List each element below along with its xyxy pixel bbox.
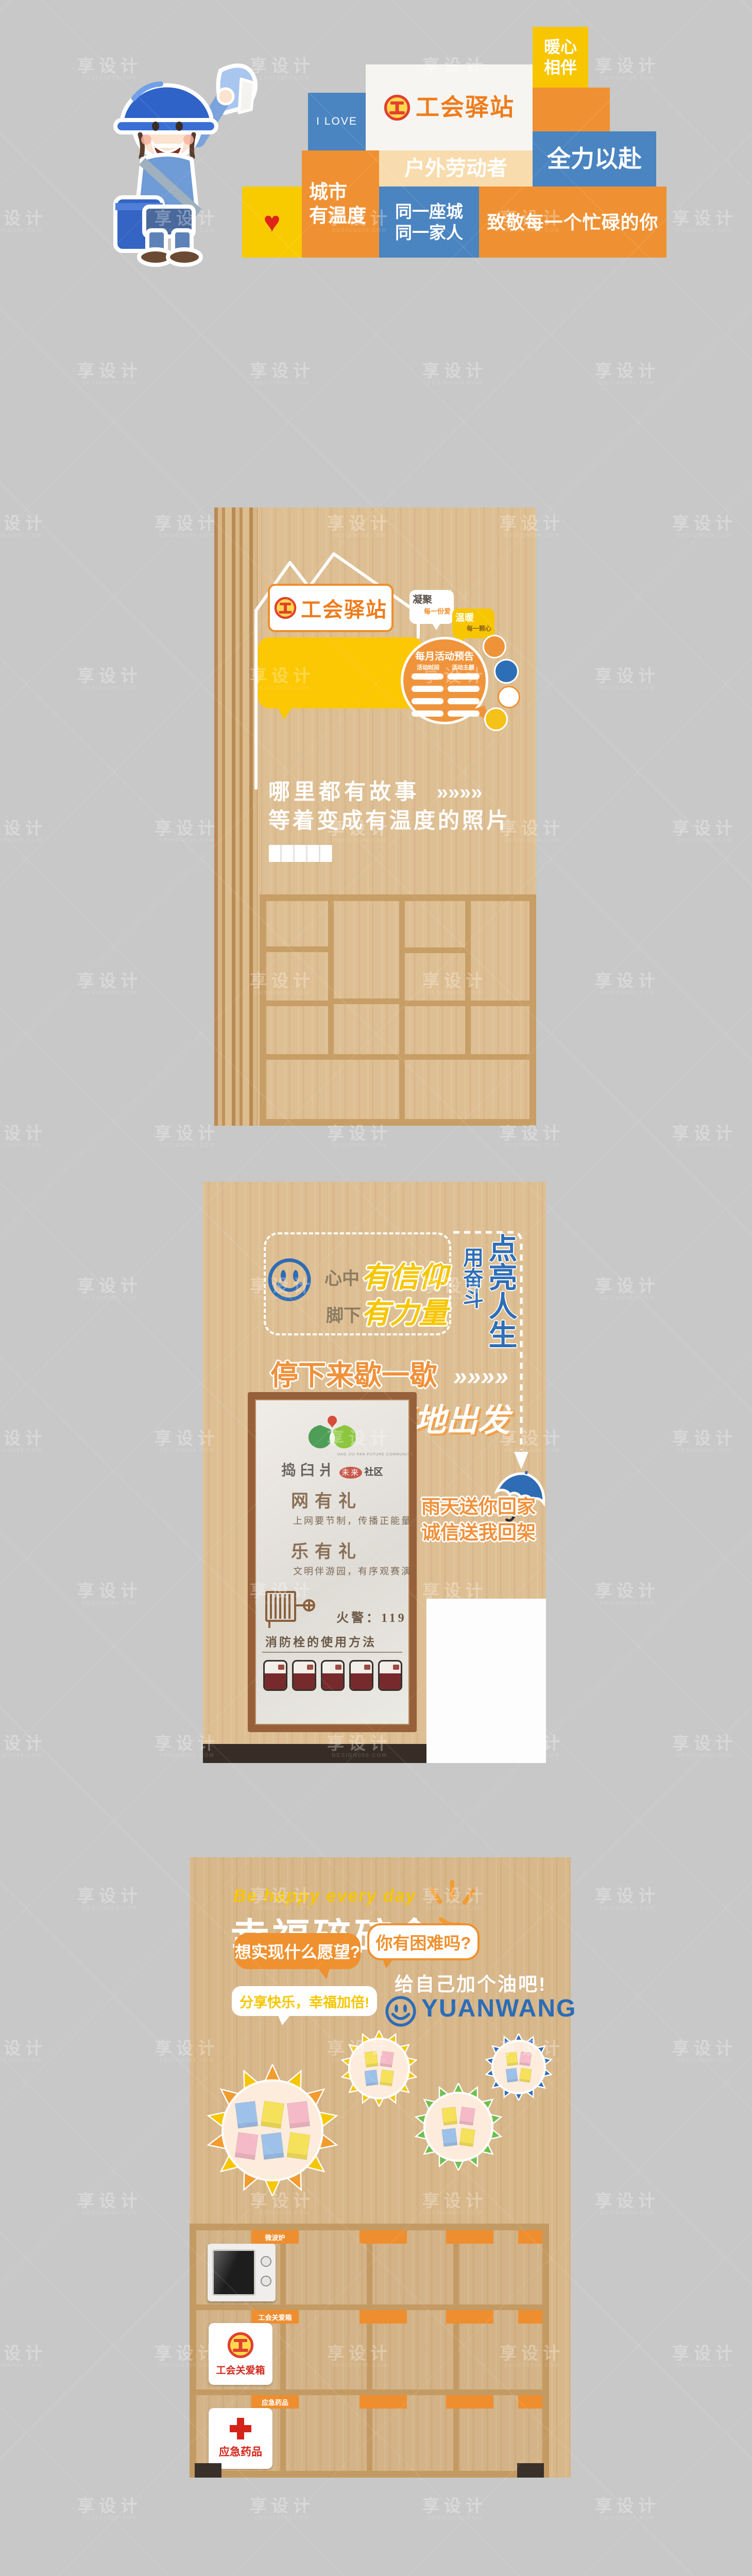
watermark-tile: 享设计DESIGN006.COM xyxy=(0,1124,47,1148)
heart-icon: ♥ xyxy=(263,208,280,236)
watermark-tile: 享设计DESIGN006.COM xyxy=(77,1582,142,1606)
poster-brand-suffix: 社区 xyxy=(364,1467,383,1477)
panel1-shelf-grid xyxy=(260,894,536,1126)
block-same-city: 同一座城 同一家人 xyxy=(379,187,479,258)
shelf-tab xyxy=(446,2395,493,2409)
shelf-tab xyxy=(446,2230,493,2244)
microwave xyxy=(208,2244,276,2301)
watermark-tile: 享设计DESIGN006.COM xyxy=(77,1277,142,1301)
watermark-tile: 享设计DESIGN006.COM xyxy=(672,819,737,843)
watermark-tile: 享设计DESIGN006.COM xyxy=(155,1124,219,1148)
watermark-tile: 享设计DESIGN006.COM xyxy=(155,819,219,843)
dot-white xyxy=(498,686,520,708)
block-outdoor-workers: 户外劳动者 xyxy=(379,150,533,187)
watermark-tile: 享设计DESIGN006.COM xyxy=(595,1887,660,1911)
shelf-tab xyxy=(518,2395,549,2409)
activity-row-slot xyxy=(448,673,480,680)
first-aid-card: 应急药品 xyxy=(209,2408,272,2469)
watermark-tile: 享设计DESIGN006.COM xyxy=(422,362,487,386)
shelf-label-first-aid: 应急药品 xyxy=(251,2395,299,2409)
note-flower-yellow xyxy=(341,2030,417,2109)
watermark-tile: 享设计DESIGN006.COM xyxy=(422,2497,487,2521)
community-logo-icon xyxy=(304,1414,361,1456)
watermark-tile: 享设计DESIGN006.COM xyxy=(77,2192,142,2216)
union-logo-icon xyxy=(384,94,411,121)
photo-speech-panel xyxy=(258,637,423,708)
shelf-tab xyxy=(518,2230,549,2244)
shelf-tab xyxy=(360,2230,407,2244)
shelf-label-care-box: 工会关爱箱 xyxy=(251,2310,299,2324)
dot-blue xyxy=(494,659,519,684)
poster-item1-title: 网有礼 xyxy=(291,1487,362,1512)
grid-divider xyxy=(266,1001,328,1006)
watermark-tile: 享设计DESIGN006.COM xyxy=(250,2497,315,2521)
grid-divider xyxy=(266,1054,529,1060)
watermark-tile: 享设计DESIGN006.COM xyxy=(672,2039,737,2063)
microwave-knob xyxy=(261,2276,271,2286)
shelf-foot xyxy=(517,2463,544,2478)
community-poster-frame: 捣臼爿 未来 社区 DAO JIU PAN FUTURE COMMUNITY 网… xyxy=(248,1392,417,1732)
watermark-tile: 享设计DESIGN006.COM xyxy=(672,2344,737,2368)
umbrella-slogan-line2: 诚信送我回架 xyxy=(421,1517,536,1545)
shelf-divider xyxy=(453,2230,459,2471)
panel1-caption-line2: 等着变成有温度的照片 xyxy=(268,803,510,835)
watermark-tile: 享设计DESIGN006.COM xyxy=(595,362,660,386)
union-logo-icon xyxy=(274,597,297,619)
watermark-tile: 享设计DESIGN006.COM xyxy=(595,2192,660,2216)
panel3-shelf: 微波炉 工会关爱箱 应急药品 xyxy=(190,2224,549,2478)
watermark-tile: 享设计DESIGN006.COM xyxy=(595,2497,660,2521)
shelf-divider xyxy=(367,2230,372,2471)
fire-hose-reel-icon xyxy=(264,1590,321,1631)
activity-title: 每月活动预告 xyxy=(403,649,486,663)
watermark-tile: 享设计DESIGN006.COM xyxy=(595,1277,660,1301)
hydrant-step-icon xyxy=(263,1660,287,1691)
bubble-tail xyxy=(278,707,292,720)
umbrella-slogan-line1: 雨天送你回家 xyxy=(421,1491,536,1519)
microwave-door xyxy=(212,2249,255,2296)
shelf-foot xyxy=(195,2463,221,2478)
grid-divider xyxy=(266,946,328,952)
poster-hydrant-title: 消防栓的使用方法 xyxy=(265,1632,377,1650)
chevrons-icon: »»»» xyxy=(453,1363,508,1391)
shelf-tab xyxy=(360,2395,407,2409)
poster-brand-badge: 未来 xyxy=(339,1467,362,1479)
shelf-tab xyxy=(360,2310,407,2324)
shelf-divider xyxy=(196,2389,542,2395)
watermark-tile: 享设计DESIGN006.COM xyxy=(0,819,47,843)
grid-divider xyxy=(471,1001,529,1006)
design-preview-canvas: 暖心 相伴 工会驿站 I LOVE 全力以赴 户外劳动者 城市 有温度 ♥ 同一… xyxy=(0,0,752,2576)
grid-divider xyxy=(328,901,334,1054)
station-badge: 工会驿站 xyxy=(268,584,394,632)
care-box-label: 工会关爱箱 xyxy=(216,2363,265,2377)
union-logo-icon xyxy=(227,2332,254,2359)
hydrant-step-icon xyxy=(349,1660,373,1691)
poster-brand: 捣臼爿 xyxy=(282,1463,337,1479)
bubble-tail xyxy=(432,623,440,630)
microwave-knob xyxy=(261,2256,271,2267)
watermark-tile: 享设计DESIGN006.COM xyxy=(155,514,219,538)
red-cross-icon xyxy=(230,2418,251,2439)
activity-col2-header: 活动主题 xyxy=(447,663,480,671)
hydrant-step-icon xyxy=(321,1660,345,1691)
watermark-tile: 享设计DESIGN006.COM xyxy=(672,1124,737,1148)
slogan-rest-line1: 停下来歇一歇 »»»» xyxy=(270,1352,508,1393)
activity-row-slot xyxy=(448,698,480,704)
note-flower-orange xyxy=(207,2064,338,2199)
shelf-label-microwave: 微波炉 xyxy=(251,2230,299,2244)
poster-item2-title: 乐有礼 xyxy=(291,1537,362,1563)
dot-orange xyxy=(483,635,506,658)
watermark-tile: 享设计DESIGN006.COM xyxy=(0,2344,47,2368)
watermark-tile: 享设计DESIGN006.COM xyxy=(672,514,737,538)
photo-strip-placeholder xyxy=(269,845,332,862)
grid-divider xyxy=(334,998,399,1004)
shelf-divider xyxy=(196,2304,542,2310)
panel-happiness-wall: Be happy every day 幸福碎碎念 你有困难吗? 想实现什么愿望?… xyxy=(190,1857,571,2478)
poster-brand-row: 捣臼爿 未来 社区 xyxy=(255,1459,409,1480)
block-station-label: 工会驿站 xyxy=(416,93,515,123)
poster-item2-desc: 文明伴游园，有序观赛演。 xyxy=(293,1564,423,1578)
poster-item1-desc: 上网要节制，传播正能量。 xyxy=(293,1514,423,1527)
watermark-tile: 享设计DESIGN006.COM xyxy=(595,1582,660,1606)
watermark-tile: 享设计DESIGN006.COM xyxy=(595,972,660,996)
poster-divider xyxy=(262,1652,402,1653)
shelf-tab xyxy=(446,2310,493,2324)
watermark-tile: 享设计DESIGN006.COM xyxy=(77,667,142,691)
activity-row-slot xyxy=(412,710,443,717)
activity-col1-header: 活动时间 xyxy=(412,663,445,671)
bubble-warmth: 温暖 每一颗心 xyxy=(452,608,494,638)
hero-illustration: 暖心 相伴 工会驿站 I LOVE 全力以赴 户外劳动者 城市 有温度 ♥ 同一… xyxy=(0,0,752,268)
panel1-caption-line1: 哪里都有故事 »»»» xyxy=(268,774,483,806)
panel-union-station-wall: 工会驿站 凝聚 每一份爱 温暖 每一颗心 每月活动预告 活动时间 活动主题 xyxy=(214,507,536,1126)
grid-divider xyxy=(405,1001,465,1006)
grid-divider xyxy=(405,947,465,953)
watermark-tile: 享设计DESIGN006.COM xyxy=(250,362,315,386)
white-cabinet-placeholder xyxy=(426,1599,546,1763)
watermark-tile: 享设计DESIGN006.COM xyxy=(0,514,47,538)
note-flower-green xyxy=(415,2083,502,2173)
watermark-tile: 享设计DESIGN006.COM xyxy=(327,1124,392,1148)
watermark-tile: 享设计DESIGN006.COM xyxy=(0,2039,47,2063)
grid-divider xyxy=(465,901,471,1054)
block-tribute: 致敬每一个忙碌的你 xyxy=(479,187,666,258)
station-badge-label: 工会驿站 xyxy=(301,593,387,623)
shelf-divider xyxy=(280,2230,286,2471)
watermark-tile: 享设计DESIGN006.COM xyxy=(672,1734,737,1758)
union-care-box-card: 工会关爱箱 xyxy=(209,2323,272,2385)
poster-brand-caption: DAO JIU PAN FUTURE COMMUNITY xyxy=(337,1453,413,1456)
watermark-tile: 享设计DESIGN006.COM xyxy=(595,667,660,691)
watermark-tile: 享设计DESIGN006.COM xyxy=(77,972,142,996)
block-i-love: I LOVE xyxy=(308,93,366,150)
hydrant-step-icon xyxy=(292,1660,316,1691)
activity-row-slot xyxy=(412,686,443,692)
first-aid-label: 应急药品 xyxy=(219,2444,262,2459)
bubble-cohesion: 凝聚 每一份爱 xyxy=(409,590,454,624)
chevrons-icon: »»»» xyxy=(437,781,483,804)
watermark-tile: 享设计DESIGN006.COM xyxy=(0,1734,47,1758)
activity-row-slot xyxy=(412,698,443,704)
watermark-tile: 享设计DESIGN006.COM xyxy=(0,1429,47,1453)
grid-divider xyxy=(399,901,405,1119)
hydrant-steps-row xyxy=(263,1660,402,1691)
block-full-effort: 全力以赴 xyxy=(533,131,656,187)
activity-preview-circle: 每月活动预告 活动时间 活动主题 xyxy=(401,637,488,724)
activity-row-slot xyxy=(412,673,443,680)
hydrant-step-icon xyxy=(378,1660,402,1691)
block-warm-companion: 暖心 相伴 xyxy=(533,27,588,88)
dot-yellow xyxy=(484,707,508,731)
watermark-tile: 享设计DESIGN006.COM xyxy=(77,1887,142,1911)
block-city-warmth: 城市 有温度 xyxy=(302,150,379,258)
watermark-tile: 享设计DESIGN006.COM xyxy=(672,1429,737,1453)
block-heart: ♥ xyxy=(242,187,302,258)
shelf-tab xyxy=(518,2310,549,2324)
block-orange-plain xyxy=(533,88,610,131)
watermark-tile: 享设计DESIGN006.COM xyxy=(77,362,142,386)
watermark-tile: 享设计DESIGN006.COM xyxy=(77,2497,142,2521)
poster-fire-label: 火警：119 xyxy=(336,1607,407,1625)
panel-rest-station-wall: 心中 有信仰 脚下 有力量 用奋斗 点亮人生 停下来歇一歇 »»»» 是为了 更… xyxy=(203,1182,546,1763)
activity-row-slot xyxy=(448,686,480,692)
watermark-tile: 享设计DESIGN006.COM xyxy=(500,1124,565,1148)
activity-row-slot xyxy=(448,710,480,717)
block-station: 工会驿站 xyxy=(366,64,533,150)
